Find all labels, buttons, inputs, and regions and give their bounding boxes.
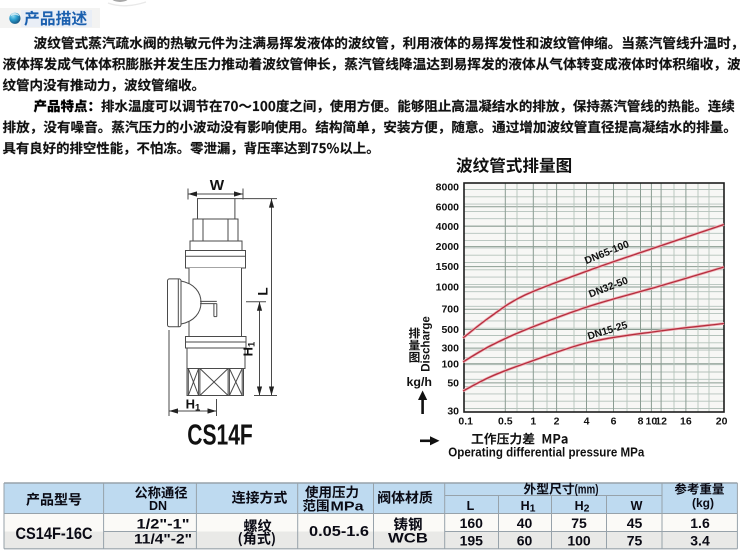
svg-text:Operating differential pressur: Operating differential pressure MPa: [448, 446, 645, 460]
svg-text:(mm): (mm): [575, 483, 599, 497]
svg-text:60: 60: [517, 533, 533, 549]
svg-text:160: 160: [460, 515, 484, 531]
svg-text:Discharge: Discharge: [421, 316, 433, 372]
svg-text:40: 40: [517, 515, 533, 531]
svg-text:1.6: 1.6: [690, 515, 710, 531]
svg-text:195: 195: [460, 533, 484, 549]
svg-text:2000: 2000: [436, 241, 460, 253]
svg-text:L: L: [467, 499, 475, 513]
svg-text:3.4: 3.4: [690, 533, 710, 549]
svg-text:75: 75: [627, 533, 643, 549]
svg-text:CS14F-16C: CS14F-16C: [16, 525, 93, 543]
svg-text:75: 75: [571, 515, 587, 531]
svg-text:6000: 6000: [436, 201, 460, 213]
svg-text:16: 16: [680, 416, 692, 428]
svg-text:4: 4: [584, 416, 590, 428]
svg-text:kg/h: kg/h: [407, 375, 432, 389]
svg-text:W: W: [210, 177, 225, 194]
svg-text:300: 300: [441, 343, 459, 355]
svg-text:700: 700: [441, 304, 459, 316]
svg-text:0.5: 0.5: [498, 416, 513, 428]
svg-text:DN: DN: [149, 499, 167, 513]
svg-text:2: 2: [554, 416, 560, 428]
svg-text:0.05-1.6: 0.05-1.6: [309, 524, 369, 540]
svg-text:12: 12: [655, 416, 667, 428]
svg-text:8000: 8000: [436, 181, 460, 193]
svg-text:30: 30: [447, 405, 459, 417]
svg-text:0.1: 0.1: [458, 416, 473, 428]
svg-text:MPa: MPa: [331, 499, 365, 514]
svg-text:500: 500: [441, 324, 459, 336]
svg-text:(kg): (kg): [692, 496, 714, 510]
svg-text:8: 8: [638, 416, 644, 428]
svg-text:4000: 4000: [436, 221, 460, 233]
svg-text:20: 20: [716, 416, 728, 428]
svg-text:6: 6: [611, 416, 617, 428]
svg-text:W: W: [631, 499, 643, 513]
svg-text:1500: 1500: [436, 261, 460, 273]
svg-text:11/4"-2": 11/4"-2": [134, 532, 192, 547]
svg-text:50: 50: [447, 377, 459, 389]
svg-text:WCB: WCB: [388, 530, 428, 546]
svg-text:1000: 1000: [436, 282, 460, 294]
svg-text:CS14F: CS14F: [187, 420, 253, 452]
svg-text:L: L: [256, 287, 271, 295]
svg-text:1: 1: [530, 416, 536, 428]
svg-text:100: 100: [567, 533, 591, 549]
svg-text:1/2"-1": 1/2"-1": [137, 517, 190, 532]
svg-text:100: 100: [441, 358, 459, 370]
svg-text:45: 45: [627, 515, 643, 531]
